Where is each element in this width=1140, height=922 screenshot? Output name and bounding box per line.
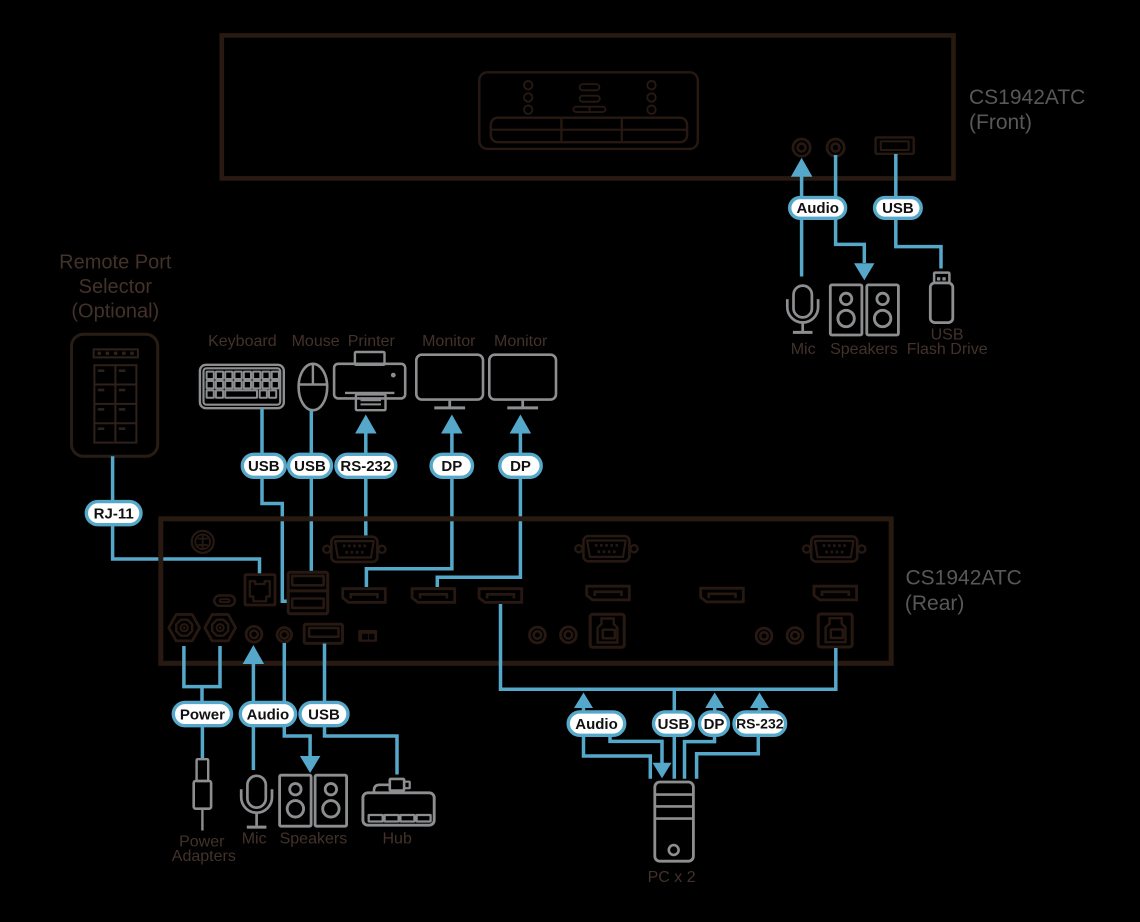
svg-text:(Rear): (Rear) <box>905 592 965 615</box>
svg-text:Selector: Selector <box>79 276 153 298</box>
svg-text:Audio: Audio <box>575 716 618 733</box>
svg-text:Mouse: Mouse <box>292 333 340 350</box>
svg-text:(Front): (Front) <box>969 111 1032 134</box>
svg-text:DP: DP <box>704 716 725 733</box>
svg-text:Mic: Mic <box>791 341 816 358</box>
svg-text:Speakers: Speakers <box>280 831 348 848</box>
svg-text:USB: USB <box>294 458 326 475</box>
svg-text:Audio: Audio <box>796 200 839 217</box>
svg-text:DP: DP <box>441 458 462 475</box>
svg-text:Printer: Printer <box>348 333 396 350</box>
svg-text:Monitor: Monitor <box>422 333 476 350</box>
svg-text:RS-232: RS-232 <box>736 716 784 732</box>
svg-text:Remote Port: Remote Port <box>59 252 172 274</box>
svg-text:Mic: Mic <box>242 831 267 848</box>
svg-text:RJ-11: RJ-11 <box>94 505 134 522</box>
svg-text:Power: Power <box>180 706 225 723</box>
svg-text:CS1942ATC: CS1942ATC <box>969 86 1085 109</box>
svg-text:PC x 2: PC x 2 <box>648 869 696 886</box>
svg-text:Audio: Audio <box>247 706 290 723</box>
svg-text:USB: USB <box>658 716 690 733</box>
svg-text:(Optional): (Optional) <box>71 301 159 323</box>
svg-text:Speakers: Speakers <box>830 341 898 358</box>
svg-text:RS-232: RS-232 <box>340 458 391 475</box>
svg-text:USB: USB <box>882 200 914 217</box>
svg-text:CS1942ATC: CS1942ATC <box>906 567 1022 590</box>
svg-text:Hub: Hub <box>383 831 412 848</box>
svg-text:USB: USB <box>308 706 340 723</box>
svg-text:DP: DP <box>510 458 531 475</box>
svg-text:Adapters: Adapters <box>172 848 236 865</box>
svg-text:Monitor: Monitor <box>494 333 548 350</box>
svg-text:Keyboard: Keyboard <box>208 333 277 350</box>
svg-text:USB: USB <box>248 458 280 475</box>
svg-text:Flash Drive: Flash Drive <box>907 341 988 358</box>
